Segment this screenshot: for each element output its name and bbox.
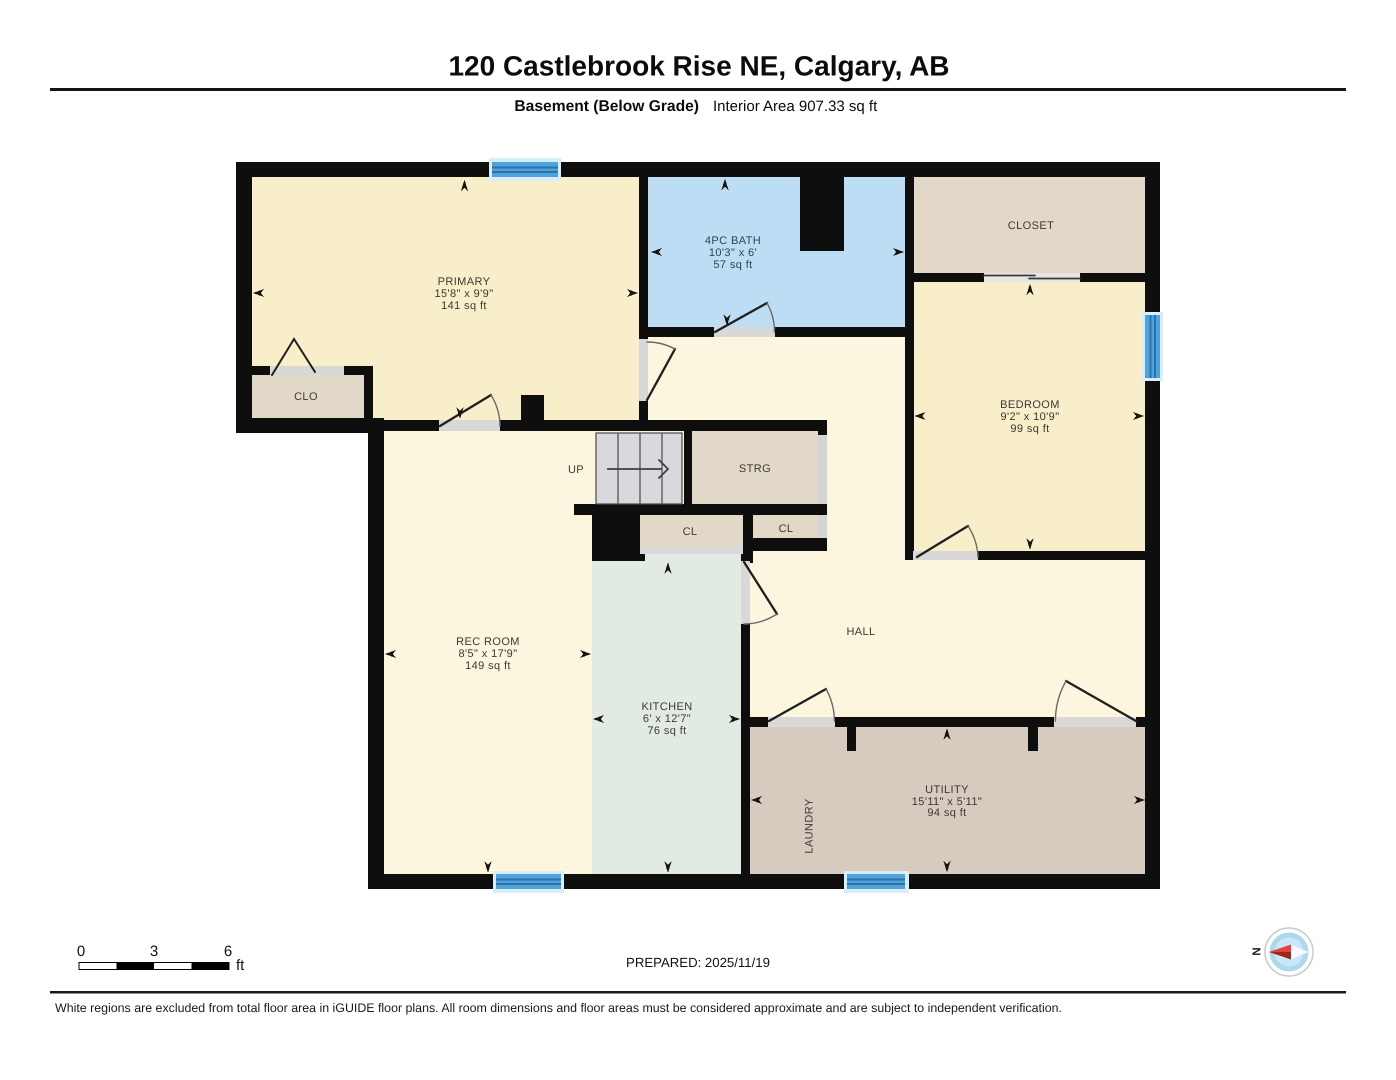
svg-text:UP: UP [568, 464, 584, 476]
svg-text:10'3" x 6': 10'3" x 6' [709, 247, 757, 259]
svg-text:6: 6 [224, 943, 232, 960]
svg-text:Basement (Below Grade): Basement (Below Grade) [514, 98, 699, 115]
svg-text:CL: CL [779, 523, 794, 535]
svg-text:4PC BATH: 4PC BATH [705, 235, 761, 247]
svg-text:STRG: STRG [739, 463, 771, 475]
svg-text:8'5" x 17'9": 8'5" x 17'9" [458, 648, 517, 660]
svg-text:6' x 12'7": 6' x 12'7" [643, 713, 691, 725]
svg-text:94 sq ft: 94 sq ft [927, 807, 966, 819]
svg-text:CL: CL [683, 526, 698, 538]
svg-text:HALL: HALL [846, 626, 875, 638]
svg-text:CLOSET: CLOSET [1008, 220, 1054, 232]
svg-text:149 sq ft: 149 sq ft [465, 660, 511, 672]
svg-text:LAUNDRY: LAUNDRY [804, 798, 816, 853]
svg-text:PRIMARY: PRIMARY [438, 276, 491, 288]
svg-text:76 sq ft: 76 sq ft [647, 725, 686, 737]
svg-text:99 sq ft: 99 sq ft [1010, 423, 1049, 435]
svg-text:CLO: CLO [294, 391, 318, 403]
svg-text:9'2" x 10'9": 9'2" x 10'9" [1000, 411, 1059, 423]
svg-text:BEDROOM: BEDROOM [1000, 399, 1060, 411]
svg-text:120 Castlebrook Rise NE, Calga: 120 Castlebrook Rise NE, Calgary, AB [448, 51, 949, 82]
svg-text:ft: ft [236, 957, 245, 974]
svg-text:Interior Area 907.33 sq ft: Interior Area 907.33 sq ft [713, 98, 878, 115]
svg-text:0: 0 [77, 943, 85, 960]
svg-text:3: 3 [150, 943, 158, 960]
svg-text:141 sq ft: 141 sq ft [441, 300, 487, 312]
svg-text:PREPARED: 2025/11/19: PREPARED: 2025/11/19 [626, 955, 770, 970]
svg-text:KITCHEN: KITCHEN [641, 701, 692, 713]
svg-text:N: N [1249, 947, 1261, 955]
svg-text:57 sq ft: 57 sq ft [713, 259, 752, 271]
svg-text:White regions are excluded fro: White regions are excluded from total fl… [55, 1001, 1062, 1015]
svg-text:UTILITY: UTILITY [925, 784, 969, 796]
svg-text:15'8" x 9'9": 15'8" x 9'9" [434, 288, 493, 300]
svg-text:REC ROOM: REC ROOM [456, 636, 520, 648]
